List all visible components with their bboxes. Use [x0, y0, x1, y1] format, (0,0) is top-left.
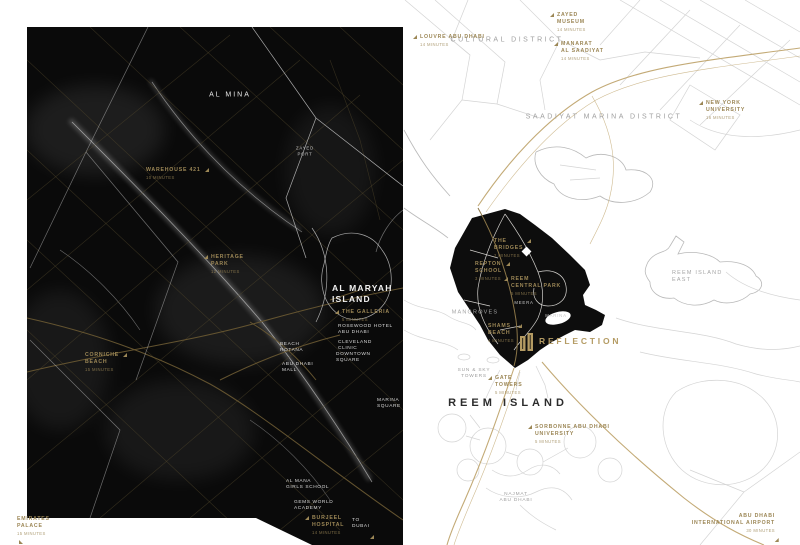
reem-island-east-text: EAST [672, 277, 723, 284]
corniche-beach-text: CORNICHE [85, 352, 119, 359]
abu-dhabi-mall-text: MALL [282, 368, 313, 374]
marina-square-label: MARINASQUARE [377, 398, 401, 410]
zayed-museum-label: ZAYEDMUSEUM14 MINUTES [557, 12, 586, 32]
al-mana-girls-school-label: AL MANAGIRLS SCHOOL [286, 479, 329, 491]
gems-world-academy-label: GEMS WORLDACADEMY [294, 500, 333, 512]
burjeel-hospital-marker-icon [305, 516, 309, 520]
al-mina-label: AL MINA [209, 90, 251, 99]
al-mana-girls-school-text: GIRLS SCHOOL [286, 485, 329, 491]
reem-central-park-text: CENTRAL PARK [511, 283, 561, 290]
heritage-park-text: PARK [211, 261, 244, 268]
manarat-al-saadiyat-minutes: 14 MINUTES [561, 56, 604, 61]
gate-towers-marker-icon [488, 376, 492, 380]
to-dubai-marker-icon [370, 535, 374, 539]
burjeel-hospital-minutes: 14 MINUTES [312, 530, 344, 535]
the-galleria-minutes: 5 MINUTES [342, 317, 390, 322]
corniche-beach-text: BEACH [85, 359, 119, 366]
repton-school-marker-icon [506, 262, 510, 266]
beach-rotana-text: ROTANA [280, 348, 303, 354]
sorbonne-university-text: SORBONNE ABU DHABI [535, 424, 610, 431]
shams-beach-text: BEACH [488, 330, 514, 337]
repton-school-minutes: 3 MINUTES [475, 276, 502, 281]
meera-text: MEERA [514, 300, 533, 306]
the-bridges-text: BRIDGES [494, 245, 523, 252]
mangroves-text: MANGROVES [452, 309, 499, 316]
reem-island-title-label: REEM ISLAND [448, 396, 568, 410]
warehouse-421-minutes: 10 MINUTES [146, 175, 201, 180]
cleveland-clinic-label: CLEVELANDCLINIC [338, 340, 372, 352]
gems-world-academy-text: ACADEMY [294, 506, 333, 512]
abu-dhabi-mall-label: ABU DHABIMALL [282, 362, 313, 374]
shams-beach-minutes: 4 MINUTES [488, 338, 514, 343]
louvre-abu-dhabi-minutes: 14 MINUTES [420, 42, 485, 47]
new-york-university-minutes: 16 MINUTES [706, 115, 745, 120]
emirates-palace-text: PALACE [17, 523, 50, 530]
sorbonne-university-text: UNIVERSITY [535, 431, 610, 438]
corniche-beach-minutes: 15 MINUTES [85, 367, 119, 372]
the-galleria-text: THE GALLERIA [342, 309, 390, 316]
zayed-port-text: PORT [296, 151, 314, 157]
zayed-port-label: ZAYEDPORT [296, 145, 314, 156]
burjeel-hospital-text: HOSPITAL [312, 522, 344, 529]
zayed-museum-marker-icon [550, 13, 554, 17]
gate-towers-minutes: 5 MINUTES [495, 390, 522, 395]
corniche-beach-label: CORNICHEBEACH15 MINUTES [85, 352, 119, 372]
saadiyat-marina-district-label: SAADIYAT MARINA DISTRICT [526, 112, 682, 121]
abu-dhabi-international-airport-label: ABU DHABIINTERNATIONAL AIRPORT30 MINUTES [692, 513, 775, 533]
emirates-palace-label: EMIRATESPALACE15 MINUTES [17, 516, 50, 536]
rosewood-hotel-label: ROSEWOOD HOTELABU DHABI [338, 324, 393, 336]
zayed-museum-text: ZAYED [557, 12, 586, 19]
heritage-park-marker-icon [204, 255, 208, 259]
new-york-university-text: NEW YORK [706, 100, 745, 107]
new-york-university-label: NEW YORKUNIVERSITY16 MINUTES [706, 100, 745, 120]
to-dubai-label: TODUBAI [352, 518, 370, 530]
beach-rotana-label: BEACHROTANA [280, 342, 303, 354]
sorbonne-university-label: SORBONNE ABU DHABIUNIVERSITY5 MINUTES [535, 424, 610, 444]
emirates-palace-minutes: 15 MINUTES [17, 531, 50, 536]
warehouse-421-label: WAREHOUSE 42110 MINUTES [146, 167, 201, 180]
najmat-abu-dhabi-text: ABU DHABI [499, 498, 532, 504]
shams-beach-marker-icon [518, 324, 522, 328]
reem-central-park-marker-icon [504, 277, 508, 281]
repton-school-text: REPTON [475, 261, 502, 268]
new-york-university-text: UNIVERSITY [706, 107, 745, 114]
reflection-brand-label: REFLECTION [539, 336, 621, 347]
zayed-museum-text: MUSEUM [557, 19, 586, 26]
reem-central-park-text: REEM [511, 276, 561, 283]
warehouse-421-text: WAREHOUSE 421 [146, 167, 201, 174]
heritage-park-text: HERITAGE [211, 254, 244, 261]
burjeel-hospital-label: BURJEELHOSPITAL14 MINUTES [312, 515, 344, 535]
marina-square-text: SQUARE [377, 404, 401, 410]
shams-beach-text: SHAMS [488, 323, 514, 330]
reem-island-east-label: REEM ISLANDEAST [672, 270, 723, 284]
reem-central-park-label: REEMCENTRAL PARK5 MINUTES [511, 276, 561, 296]
gate-towers-text: GATE [495, 375, 522, 382]
zayed-port-text: ZAYED [296, 145, 314, 151]
emirates-palace-text: EMIRATES [17, 516, 50, 523]
abu-dhabi-international-airport-minutes: 30 MINUTES [692, 528, 775, 533]
the-bridges-label: THEBRIDGES2 MINUTES [494, 238, 523, 258]
al-maryah-island-text: ISLAND [332, 294, 393, 305]
the-bridges-marker-icon [527, 239, 531, 243]
reem-island-title-text: REEM ISLAND [448, 396, 568, 410]
emirates-palace-marker-icon [19, 540, 23, 544]
sun-sky-towers-label: SUN & SKYTOWERS [458, 368, 491, 380]
new-york-university-marker-icon [699, 101, 703, 105]
manarat-al-saadiyat-text: AL SAADIYAT [561, 48, 604, 55]
louvre-abu-dhabi-label: LOUVRE ABU DHABI14 MINUTES [420, 34, 485, 47]
sun-sky-towers-text: TOWERS [458, 374, 491, 380]
gate-towers-text: TOWERS [495, 382, 522, 389]
abu-dhabi-international-airport-text: INTERNATIONAL AIRPORT [692, 520, 775, 527]
burjeel-hospital-text: BURJEEL [312, 515, 344, 522]
manarat-al-saadiyat-text: MANARAT [561, 41, 604, 48]
heritage-park-label: HERITAGEPARK12 MINUTES [211, 254, 244, 274]
al-maryah-island-label: AL MARYAHISLAND [332, 283, 393, 305]
manarat-al-saadiyat-label: MANARATAL SAADIYAT14 MINUTES [561, 41, 604, 61]
downtown-square-label: DOWNTOWNSQUARE [336, 352, 371, 364]
marina-area-text: MARINA [545, 313, 567, 319]
mangroves-label: MANGROVES [452, 309, 499, 316]
marina-area-label: MARINA [545, 313, 567, 319]
al-maryah-island-text: AL MARYAH [332, 283, 393, 294]
the-bridges-text: THE [494, 238, 523, 245]
warehouse-421-marker-icon [205, 168, 209, 172]
sorbonne-university-marker-icon [528, 425, 532, 429]
the-galleria-label: THE GALLERIA5 MINUTES [342, 309, 390, 322]
gate-towers-label: GATETOWERS5 MINUTES [495, 375, 522, 395]
sorbonne-university-minutes: 5 MINUTES [535, 439, 610, 444]
louvre-abu-dhabi-marker-icon [413, 35, 417, 39]
the-galleria-marker-icon [335, 310, 339, 314]
repton-school-label: REPTONSCHOOL3 MINUTES [475, 261, 502, 281]
downtown-square-text: SQUARE [336, 358, 371, 364]
location-map-page: CULTURAL DISTRICTSAADIYAT MARINA DISTRIC… [0, 0, 800, 545]
repton-school-text: SCHOOL [475, 268, 502, 275]
manarat-al-saadiyat-marker-icon [554, 42, 558, 46]
the-bridges-minutes: 2 MINUTES [494, 253, 523, 258]
najmat-abu-dhabi-label: NAJMATABU DHABI [499, 492, 532, 504]
to-dubai-text: DUBAI [352, 524, 370, 530]
meera-label: MEERA [514, 300, 533, 306]
shams-beach-label: SHAMSBEACH4 MINUTES [488, 323, 514, 343]
reem-island-east-text: REEM ISLAND [672, 270, 723, 277]
corniche-beach-marker-icon [123, 353, 127, 357]
louvre-abu-dhabi-text: LOUVRE ABU DHABI [420, 34, 485, 41]
abu-dhabi-international-airport-marker-icon [775, 538, 779, 542]
heritage-park-minutes: 12 MINUTES [211, 269, 244, 274]
zayed-museum-minutes: 14 MINUTES [557, 27, 586, 32]
reem-central-park-minutes: 5 MINUTES [511, 291, 561, 296]
abu-dhabi-international-airport-text: ABU DHABI [692, 513, 775, 520]
al-mina-text: AL MINA [209, 90, 251, 99]
saadiyat-marina-district-text: SAADIYAT MARINA DISTRICT [526, 112, 682, 121]
reflection-brand-text: REFLECTION [539, 336, 621, 347]
rosewood-hotel-text: ABU DHABI [338, 330, 393, 336]
